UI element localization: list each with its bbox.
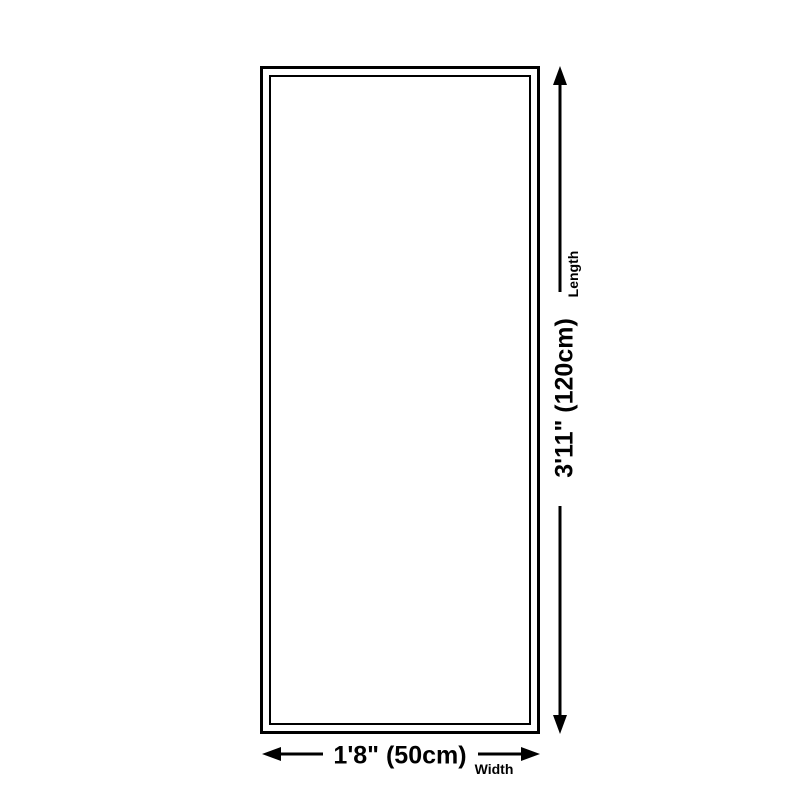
dimension-diagram: 3'11" (120cm) Length 1'8" (50cm) Width [0,0,800,800]
arrow-right-icon [521,747,540,761]
arrow-left-icon [262,747,281,761]
width-label: Width [475,762,514,776]
arrow-up-icon [553,66,567,85]
length-value: 3'11" (120cm) [553,318,578,478]
width-value: 1'8" (50cm) [333,744,466,769]
product-outline-inner [269,75,531,725]
length-label: Length [566,251,580,298]
arrow-down-icon [553,715,567,734]
product-outline-outer [260,66,540,734]
